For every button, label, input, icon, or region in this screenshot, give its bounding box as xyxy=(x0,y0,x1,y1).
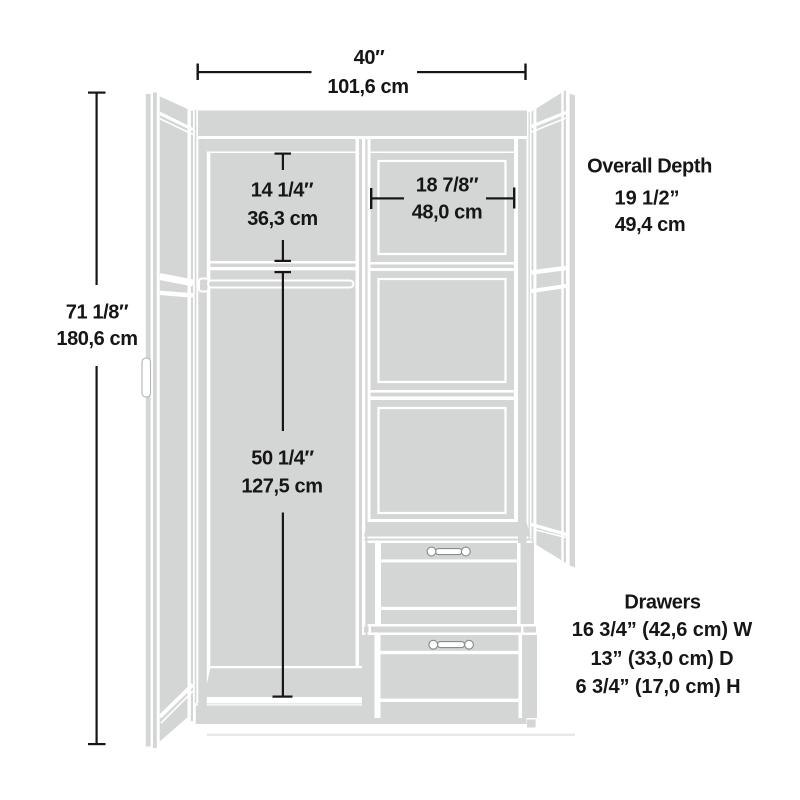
svg-text:40″: 40″ xyxy=(354,47,385,69)
svg-text:101,6 cm: 101,6 cm xyxy=(327,76,408,98)
svg-text:6 3/4” (17,0 cm) H: 6 3/4” (17,0 cm) H xyxy=(576,676,741,698)
svg-text:49,4 cm: 49,4 cm xyxy=(615,214,686,236)
svg-text:Drawers: Drawers xyxy=(624,592,700,614)
svg-text:Overall Depth: Overall Depth xyxy=(587,156,712,178)
svg-text:19 1/2”: 19 1/2” xyxy=(615,188,680,210)
svg-text:50 1/4″: 50 1/4″ xyxy=(251,448,314,470)
svg-text:16 3/4” (42,6 cm) W: 16 3/4” (42,6 cm) W xyxy=(572,619,753,641)
svg-text:13” (33,0 cm) D: 13” (33,0 cm) D xyxy=(590,648,733,670)
svg-text:71 1/8″: 71 1/8″ xyxy=(66,302,129,324)
svg-text:18 7/8″: 18 7/8″ xyxy=(416,175,479,197)
svg-text:127,5 cm: 127,5 cm xyxy=(241,476,322,498)
svg-text:180,6 cm: 180,6 cm xyxy=(56,328,137,350)
svg-text:14 1/4″: 14 1/4″ xyxy=(251,180,314,202)
svg-text:48,0 cm: 48,0 cm xyxy=(412,202,483,224)
svg-text:36,3 cm: 36,3 cm xyxy=(247,208,318,230)
